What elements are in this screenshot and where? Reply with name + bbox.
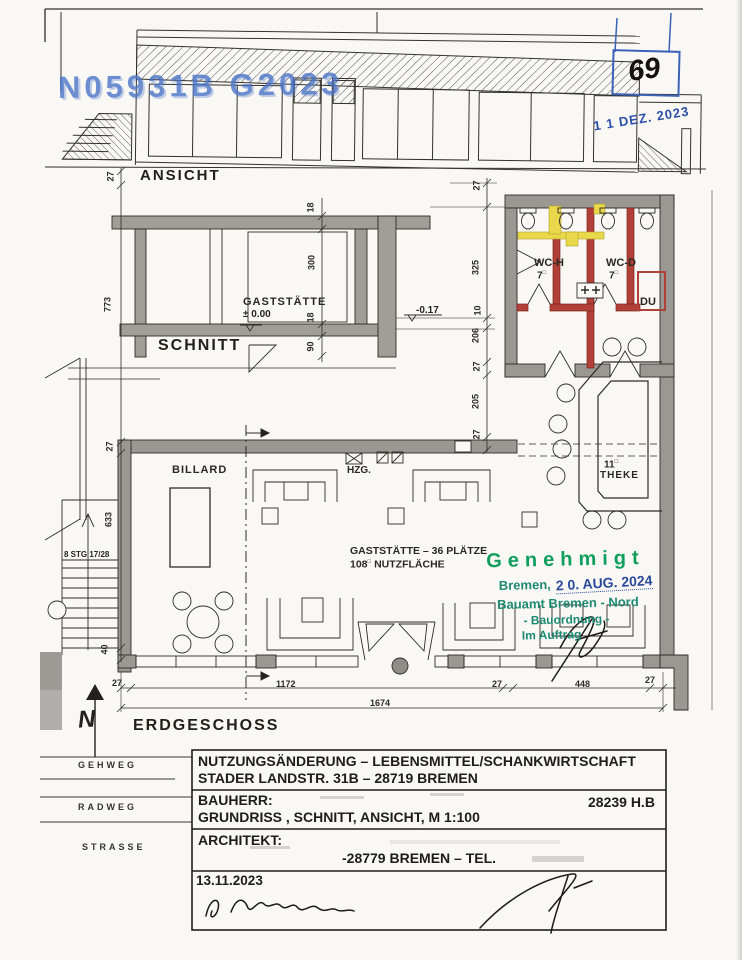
street-gehweg: GEHWEG — [78, 761, 137, 770]
dim-27-bottom-mid: 27 — [492, 680, 502, 689]
theke-unit: □ — [615, 459, 619, 465]
scan-artifact-strip-dark — [40, 652, 62, 690]
approval-city: Bremen, — [499, 577, 551, 593]
north-letter: N — [77, 707, 96, 732]
billiard-table — [170, 488, 210, 567]
entrance-doors — [358, 622, 435, 660]
dim-27-left-top: 27 — [107, 164, 116, 190]
level-minus-label: -0.17 — [416, 306, 439, 316]
dim-27-bottom-left: 27 — [112, 679, 122, 688]
gast-area-num: 108 — [350, 559, 368, 571]
wc-block — [517, 204, 665, 377]
small-table — [522, 512, 537, 527]
dim-90: 90 — [307, 334, 316, 360]
dim-325: 325 — [472, 255, 481, 281]
theke-num: 11 — [604, 459, 615, 470]
street-radweg: RADWEG — [78, 803, 137, 812]
floor-label: ERDGESCHOSS — [133, 718, 279, 734]
room-label-wc-d: WC-D — [606, 258, 636, 269]
architect-address: -28779 BREMEN – TEL. — [342, 851, 496, 865]
dim-300: 300 — [308, 250, 317, 276]
gast-area-text: NUTZFLÄCHE — [374, 559, 445, 571]
project-title-line1: NUTZUNGSÄNDERUNG – LEBENSMITTEL/SCHANKWI… — [198, 754, 636, 768]
billard-label: BILLARD — [172, 465, 227, 476]
room-area-wc-h: 7□ — [537, 270, 546, 281]
gast-capacity-line: GASTSTÄTTE – 36 PLÄTZE — [350, 546, 487, 557]
drawing-date: 13.11.2023 — [196, 874, 263, 888]
bar-counter — [579, 362, 662, 511]
dim-27-bottom-right: 27 — [645, 676, 655, 685]
sheet-number-box: 69 — [611, 49, 680, 97]
wc-d-name: WC-D — [606, 257, 636, 269]
room-label-du: DU — [640, 297, 656, 308]
bollard — [392, 658, 408, 674]
gast-area-unit: □ — [368, 559, 372, 565]
dim-18-top: 18 — [307, 195, 316, 221]
architekt-label: ARCHITEKT: — [198, 833, 282, 847]
approval-authority: Bauamt Bremen - Nord — [497, 594, 639, 612]
file-number-stamp: N05931B G2023 — [58, 68, 343, 103]
hzg-label: HZG. — [347, 466, 371, 476]
sheet-number: 69 — [626, 52, 662, 89]
approver-flourish — [480, 874, 592, 933]
wc-d-unit: □ — [615, 270, 619, 276]
approval-by-order: Im Auftrag — [522, 627, 582, 642]
approval-department: - Bauordnung - — [523, 612, 609, 628]
dim-773: 773 — [104, 292, 113, 318]
file-reference: 28239 H.B — [588, 795, 655, 809]
dim-27-left-mid: 27 — [106, 434, 115, 460]
approval-city-line: Bremen,2 0. AUG. 2024 — [499, 574, 653, 594]
door-in-top-wall — [455, 441, 471, 452]
door-swings — [517, 250, 640, 377]
dim-27-right-mid: 27 — [473, 354, 482, 380]
gast-area-line: 108□ NUTZFLÄCHE — [350, 559, 445, 570]
project-title-line2: STADER LANDSTR. 31B – 28719 BREMEN — [198, 771, 478, 785]
wc-h-name: WC-H — [534, 257, 564, 269]
section-view — [45, 216, 442, 540]
theke-area: 11□ — [604, 459, 618, 470]
dim-205: 205 — [472, 389, 481, 415]
dashed-beam-lines — [518, 444, 658, 456]
room-area-wc-d: 7□ — [609, 270, 618, 281]
heater-symbols — [346, 452, 403, 464]
dim-27-right-top: 27 — [473, 173, 482, 199]
dim-448: 448 — [575, 680, 590, 689]
dim-1674: 1674 — [370, 699, 390, 708]
room-label-wc-h: WC-H — [534, 258, 564, 269]
street-strasse: STRASSE — [82, 843, 146, 852]
dim-633: 633 — [105, 507, 114, 533]
wc-h-unit: □ — [543, 270, 547, 276]
dim-27-right-bot: 27 — [473, 422, 482, 448]
dim-40: 40 — [101, 637, 110, 663]
bauherr-label: BAUHERR: — [198, 793, 273, 807]
elevation-label: ANSICHT — [140, 168, 221, 183]
drawing-content-line: GRUNDRISS , SCHNITT, ANSICHT, M 1:100 — [198, 810, 480, 824]
sheet-box-guides — [615, 13, 671, 52]
dim-18-bottom: 18 — [307, 305, 316, 331]
round-table-group — [173, 592, 233, 653]
section-label: SCHNITT — [158, 338, 241, 354]
stairs-label: 8 STG 17/28 — [64, 551, 109, 559]
dim-1172: 1172 — [276, 680, 296, 689]
dim-10: 10 — [474, 298, 483, 324]
elevation-stairs — [62, 113, 132, 160]
booth-benches-top — [253, 470, 490, 524]
architect-signature — [206, 900, 354, 917]
theke-name: THEKE — [600, 471, 639, 481]
scanned-building-plan: { "stamps": { "file_number": "N05931B G2… — [0, 0, 742, 960]
level-zero-label: ± 0.00 — [243, 310, 271, 320]
approval-title: Genehmigt — [486, 547, 645, 573]
dim-206: 206 — [472, 323, 481, 349]
